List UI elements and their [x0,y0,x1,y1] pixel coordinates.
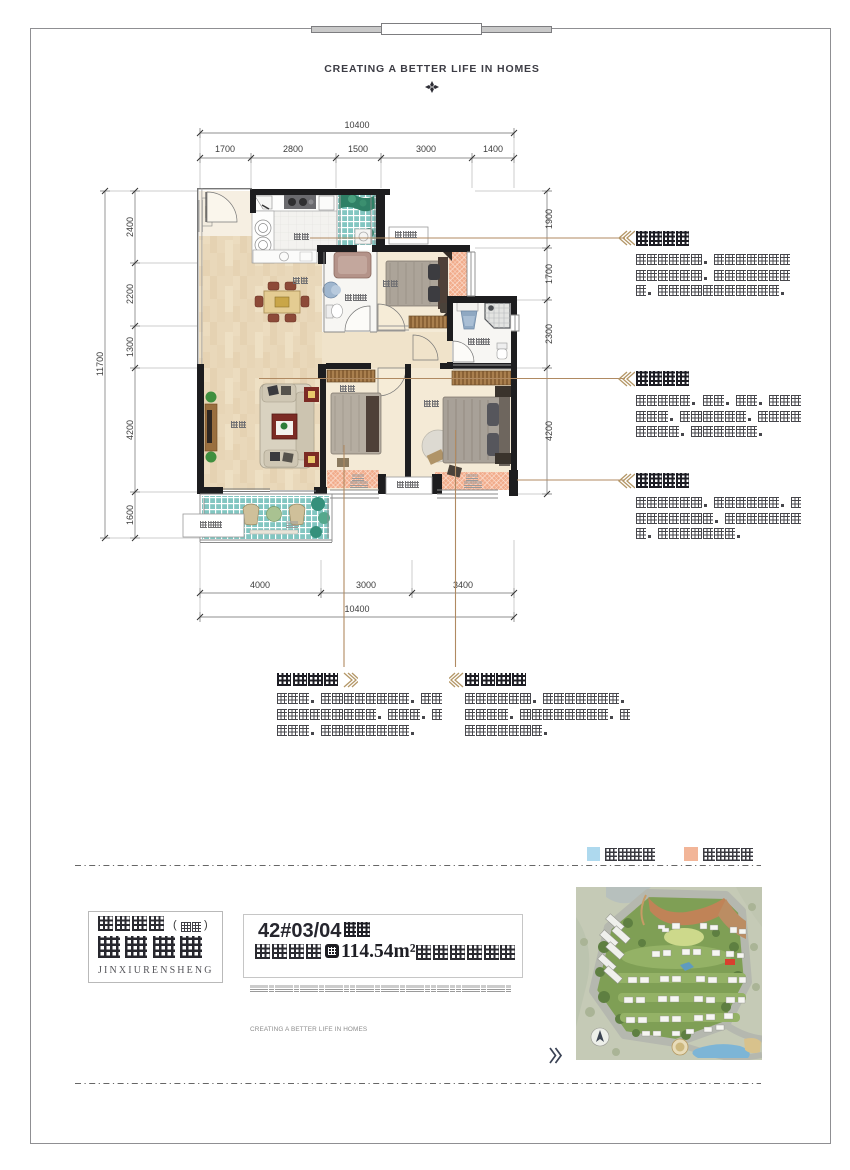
svg-text:1300: 1300 [125,337,135,357]
svg-text:4200: 4200 [125,420,135,440]
svg-text:10400: 10400 [344,120,369,130]
svg-text:2800: 2800 [283,144,303,154]
svg-text:3000: 3000 [416,144,436,154]
svg-text:1900: 1900 [544,209,554,229]
svg-text:1500: 1500 [348,144,368,154]
svg-text:2300: 2300 [544,324,554,344]
svg-text:4200: 4200 [544,421,554,441]
svg-text:1600: 1600 [125,505,135,525]
svg-text:4000: 4000 [250,580,270,590]
svg-text:11700: 11700 [95,352,105,376]
svg-text:1700: 1700 [544,264,554,284]
svg-text:3000: 3000 [356,580,376,590]
svg-text:10400: 10400 [344,604,369,614]
svg-text:2200: 2200 [125,284,135,304]
svg-text:1700: 1700 [215,144,235,154]
svg-text:1400: 1400 [483,144,503,154]
svg-text:2400: 2400 [125,217,135,237]
